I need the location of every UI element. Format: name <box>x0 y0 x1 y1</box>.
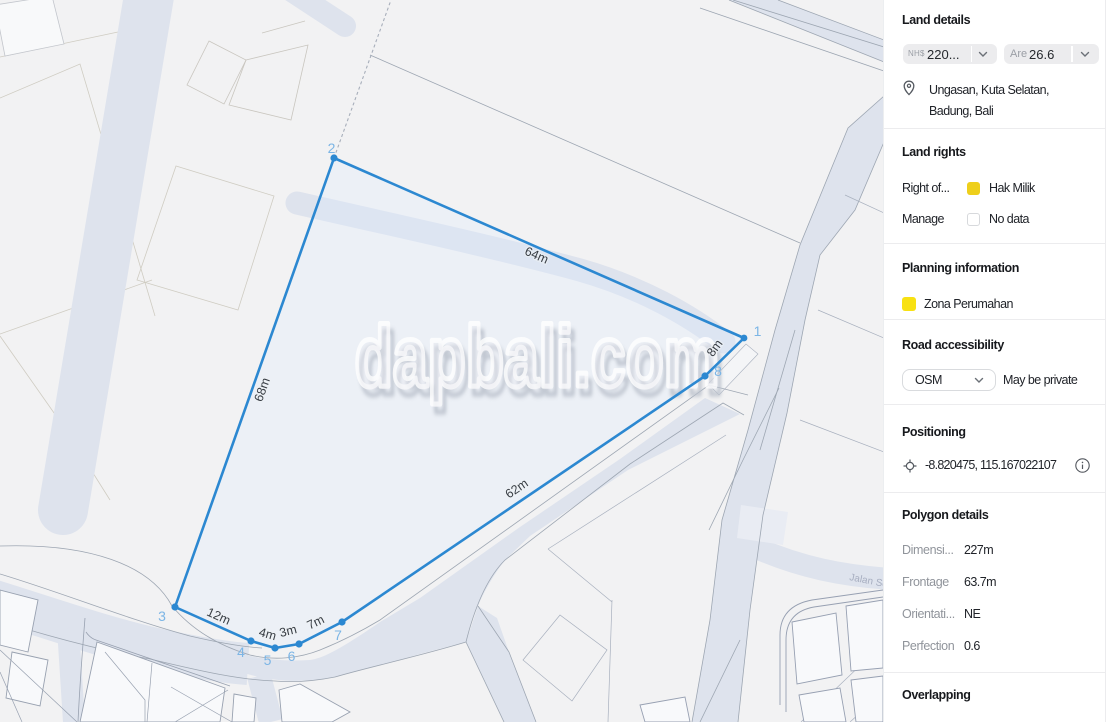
svg-text:3: 3 <box>158 608 166 624</box>
svg-text:1: 1 <box>754 323 762 339</box>
svg-text:5: 5 <box>264 652 272 668</box>
svg-text:6: 6 <box>288 648 296 664</box>
svg-text:8: 8 <box>714 363 722 379</box>
svg-text:dapbali.com: dapbali.com <box>356 311 721 407</box>
svg-text:7: 7 <box>334 627 342 643</box>
svg-text:4: 4 <box>237 644 245 660</box>
svg-text:2: 2 <box>328 140 336 156</box>
